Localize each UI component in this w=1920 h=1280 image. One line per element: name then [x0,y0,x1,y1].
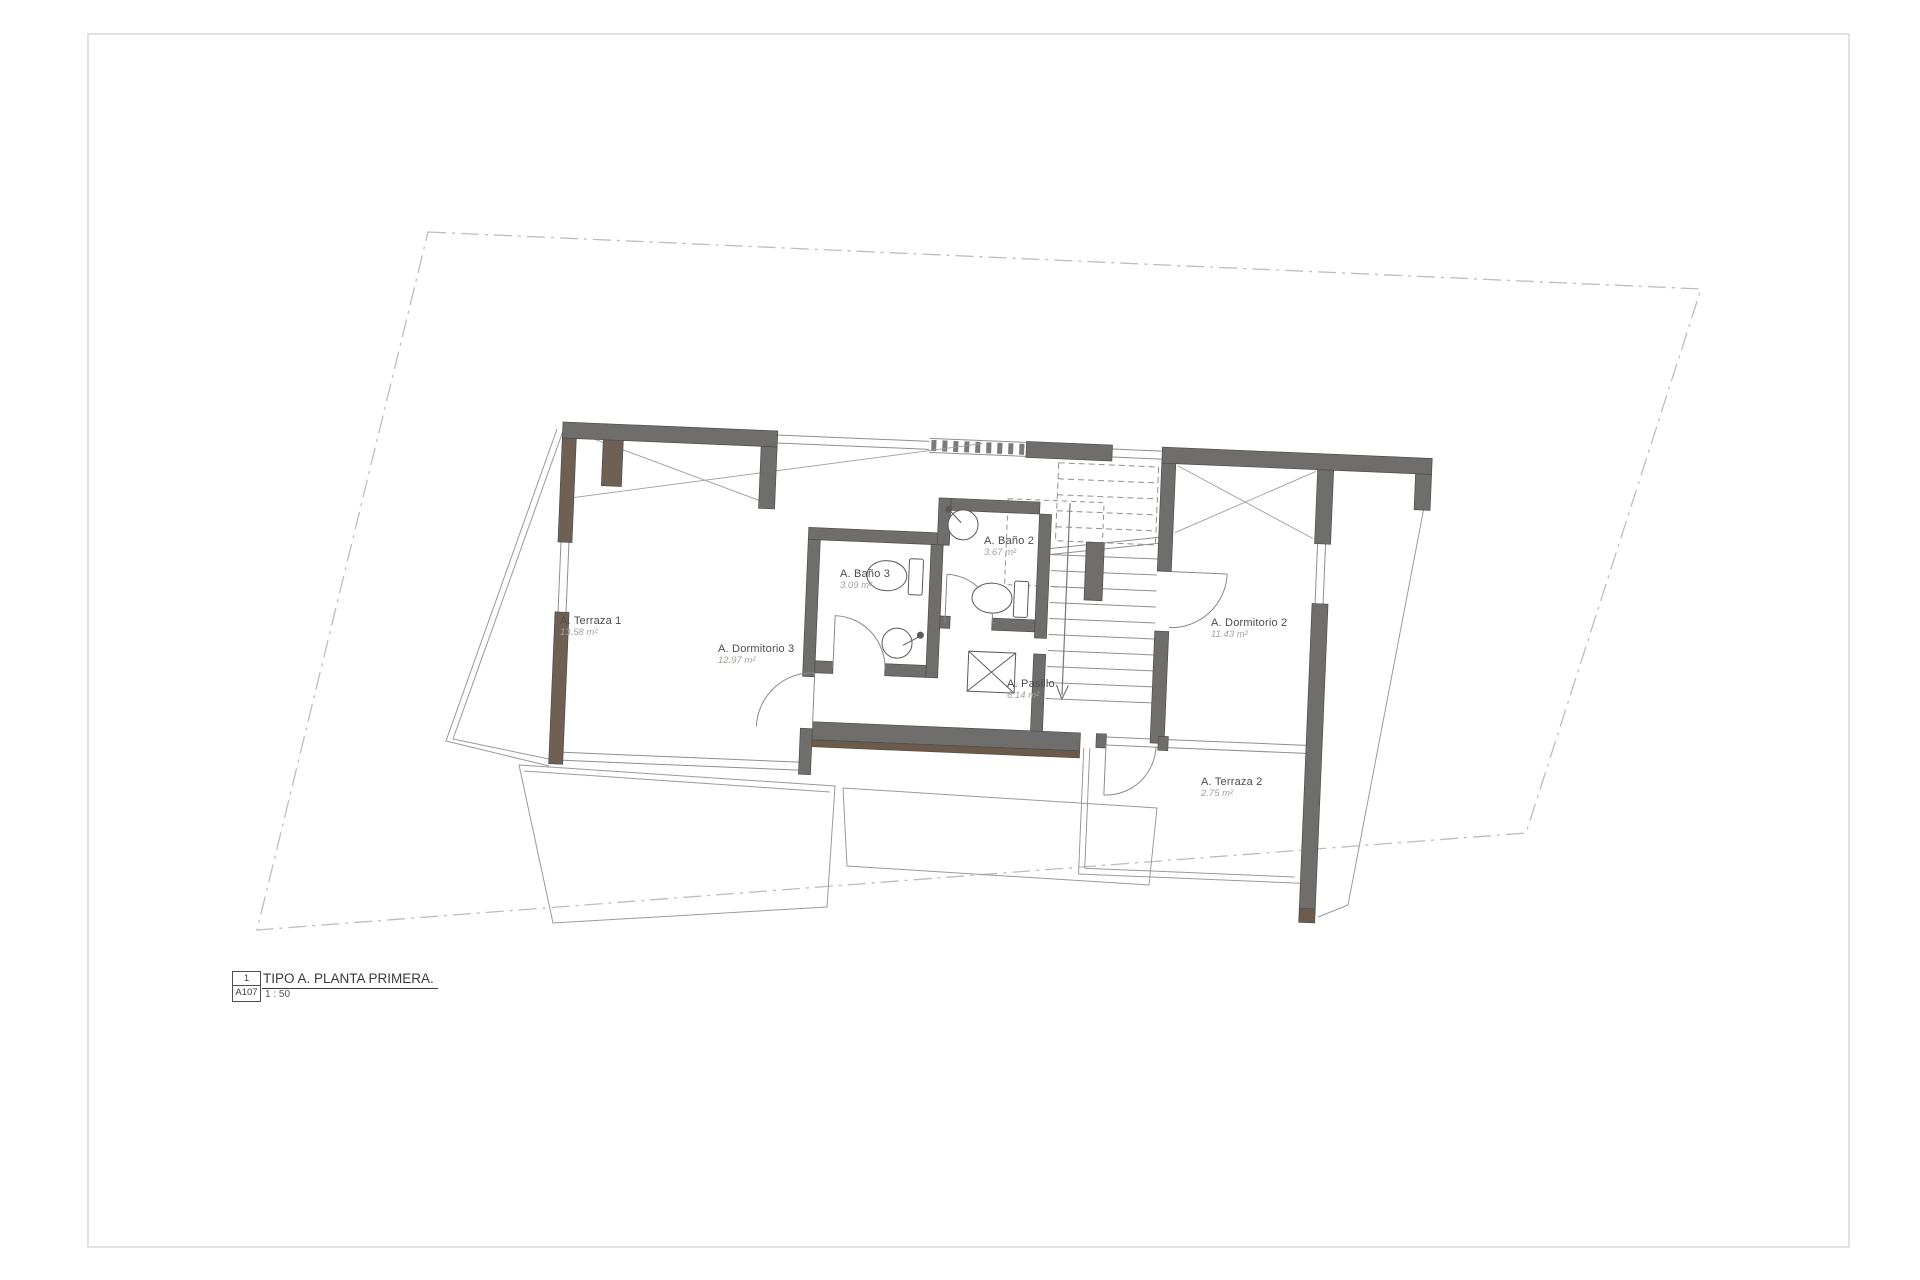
room-label-terraza-1: A. Terraza 1 13.58 m² [560,615,622,638]
room-label-terraza-2: A. Terraza 2 2.75 m² [1201,776,1263,799]
stair-direction-arrow [1056,503,1076,699]
detail-reference-box: 1 A107 [232,971,261,1002]
floor-plan-canvas [0,0,1920,1280]
room-label-dormitorio-3: A. Dormitorio 3 12.97 m² [718,643,794,666]
room-label-bano-3: A. Baño 3 3.09 m² [840,568,890,591]
sheet-border [88,34,1849,1247]
terrace1-railing [446,429,563,766]
room-label-pasillo: A. Pasillo 6.14 m² [1007,678,1055,701]
drawing-scale: 1 : 50 [265,989,290,1000]
terrace2-railing [1079,748,1306,883]
site-boundary-line [257,232,1701,930]
toilet-icon [971,579,1028,617]
drawing-sheet: A. Terraza 1 13.58 m² A. Dormitorio 3 12… [0,0,1920,1280]
drawing-title: TIPO A. PLANTA PRIMERA. [262,971,438,989]
sink-icon [881,628,923,660]
room-label-dormitorio-2: A. Dormitorio 2 11.43 m² [1211,617,1287,640]
lower-floor-outline [519,765,1157,923]
room-label-bano-2: A. Baño 2 3.67 m² [984,535,1034,558]
detail-number: 1 [233,972,260,986]
sheet-reference: A107 [233,986,260,1000]
building [543,422,1432,927]
right-boundary-wedge [1318,476,1430,917]
